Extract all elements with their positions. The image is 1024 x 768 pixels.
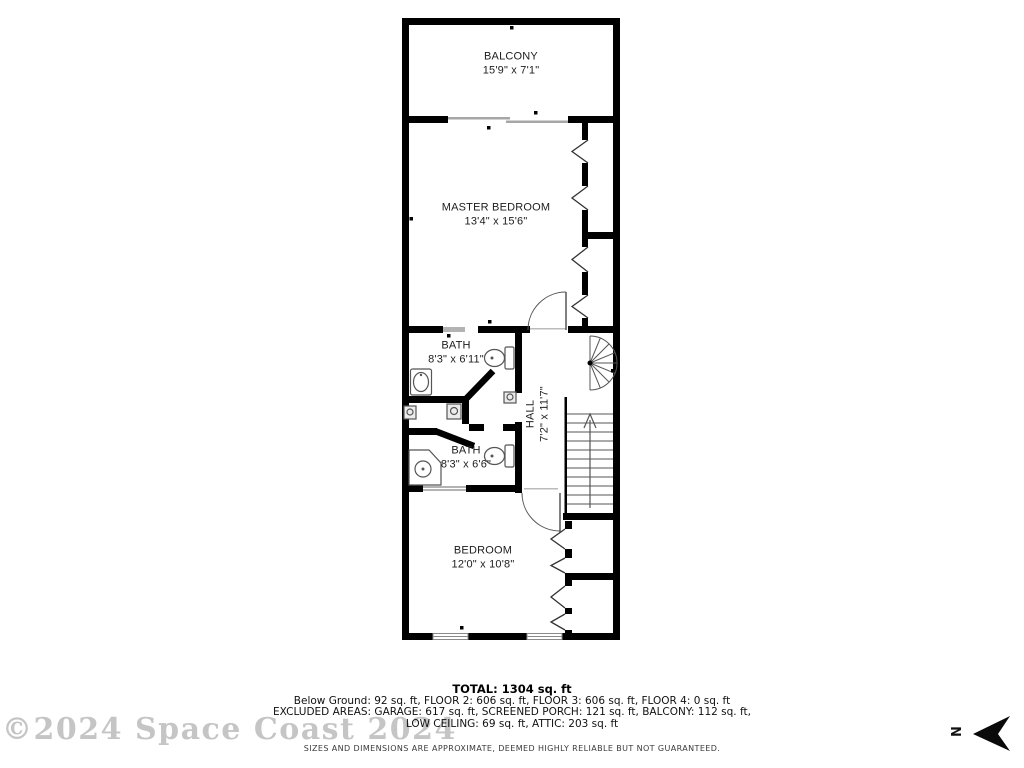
- room-dims: 8'3" x 6'11": [428, 353, 484, 367]
- closet-door: [551, 558, 565, 573]
- winder-stair: [588, 336, 618, 390]
- room-dims: 15'9" x 7'1": [483, 64, 540, 78]
- corner-shower: [409, 450, 441, 485]
- pocket-door: [443, 327, 465, 332]
- closet-door: [551, 529, 565, 549]
- area-summary: TOTAL: 1304 sq. ft Below Ground: 92 sq. …: [0, 683, 1024, 730]
- balcony-slider-panel: [506, 121, 568, 124]
- room-name: BEDROOM: [452, 545, 515, 559]
- closet-door: [572, 140, 588, 163]
- excluded-areas: EXCLUDED AREAS: GARAGE: 617 sq. ft, SCRE…: [0, 707, 1024, 718]
- room-dims: 7'2" x 11'7": [538, 386, 552, 442]
- room-name: BATH: [441, 445, 491, 459]
- sink-vanity: [411, 369, 432, 395]
- floor-plan-drawing: [0, 0, 1024, 768]
- staircase: [567, 336, 617, 508]
- room-label-bath-upper: BATH 8'3" x 6'11": [428, 340, 484, 367]
- room-name: BATH: [428, 340, 484, 354]
- floor-plan: BALCONY 15'9" x 7'1" MASTER BEDROOM 13'4…: [0, 0, 1024, 768]
- closet-door: [551, 586, 565, 608]
- room-label-balcony: BALCONY 15'9" x 7'1": [483, 51, 540, 78]
- toilet: [485, 347, 515, 369]
- closet-door: [572, 295, 588, 318]
- disclaimer-text: SIZES AND DIMENSIONS ARE APPROXIMATE, DE…: [0, 744, 1024, 753]
- room-name: HALL: [525, 386, 539, 442]
- north-label: N: [950, 726, 965, 737]
- room-label-master-bedroom: MASTER BEDROOM 13'4" x 15'6": [442, 202, 551, 229]
- room-label-bath-lower: BATH 8'3" x 6'6": [441, 445, 491, 472]
- room-label-hall: HALL 7'2" x 11'7": [525, 386, 552, 442]
- room-name: MASTER BEDROOM: [442, 202, 551, 216]
- room-dims: 12'0" x 10'8": [452, 558, 515, 572]
- balcony-slider-panel: [448, 117, 510, 120]
- room-name: BALCONY: [483, 51, 540, 65]
- closet-door: [572, 247, 588, 272]
- room-label-bedroom: BEDROOM 12'0" x 10'8": [452, 545, 515, 572]
- stair-up-arrow: [584, 414, 596, 508]
- closet-door: [572, 186, 588, 210]
- closet-door: [551, 614, 565, 630]
- room-dims: 13'4" x 15'6": [442, 215, 551, 229]
- room-dims: 8'3" x 6'6": [441, 458, 491, 472]
- excluded-areas-cont: LOW CEILING: 69 sq. ft, ATTIC: 203 sq. f…: [0, 719, 1024, 730]
